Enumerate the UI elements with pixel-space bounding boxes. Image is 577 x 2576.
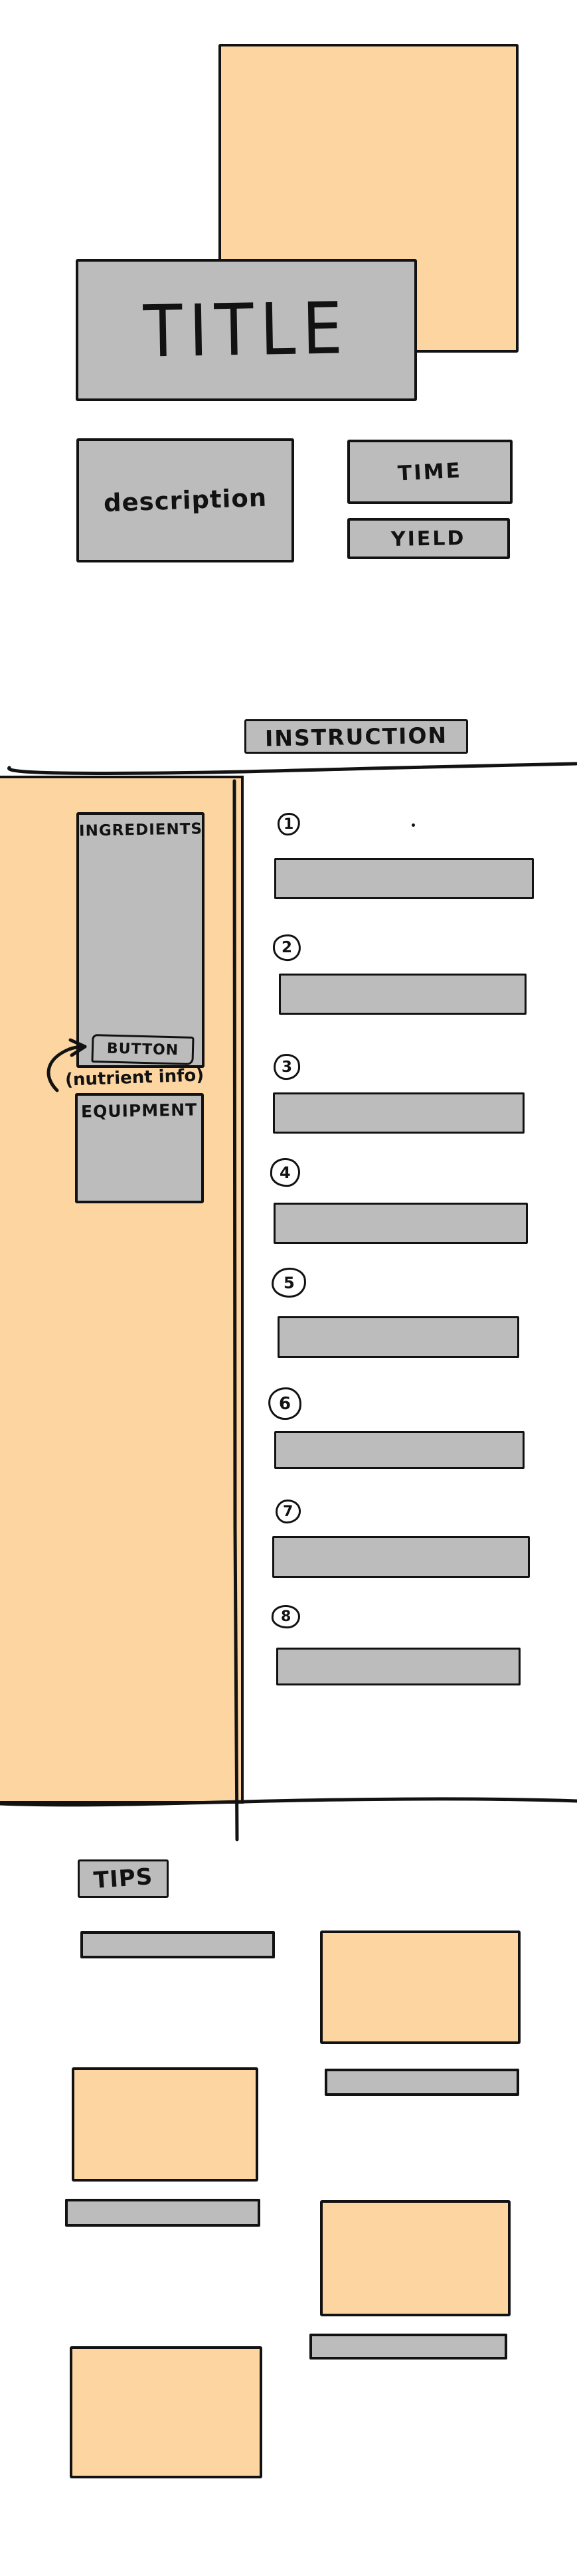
title-box: TITLE [76,259,417,401]
nutrient-info-annotation: (nutrient info) [63,1068,206,1088]
step-text-bar-8 [276,1648,521,1685]
description-box: description [76,438,294,562]
instruction-header: INSTRUCTION [244,719,468,754]
step-number-8: 8 [271,1604,301,1630]
nutrient-info-button[interactable]: BUTTON [91,1034,194,1065]
step-number-4: 4 [270,1158,301,1187]
step-text-bar-4 [274,1203,528,1244]
tips-image-placeholder-1 [320,1931,521,2044]
ingredients-box: INGREDIENTS [76,812,205,1068]
step-text-bar-5 [278,1316,519,1358]
nutrient-info-button-label: BUTTON [107,1041,179,1059]
step-number-1: 1 [276,812,301,836]
step-number-2: 2 [272,934,302,962]
tips-image-placeholder-2 [72,2067,258,2182]
ingredients-label: INGREDIENTS [78,820,202,839]
equipment-label: EQUIPMENT [81,1100,198,1121]
title-text: TITLE [143,287,350,374]
ink-dot [412,823,415,827]
yield-badge: YIELD [347,518,510,559]
step-number-5: 5 [270,1266,307,1299]
step-text-bar-7 [272,1536,530,1578]
time-badge: TIME [347,440,513,504]
tips-header: TIPS [78,1859,169,1898]
tips-text-bar-2 [325,2069,519,2096]
step-number-7: 7 [275,1499,301,1524]
step-text-bar-2 [279,974,527,1015]
tips-image-placeholder-4 [70,2346,262,2478]
step-number-6: 6 [267,1386,303,1421]
tips-image-placeholder-3 [320,2200,511,2316]
tips-header-text: TIPS [93,1863,154,1894]
step-number-3: 3 [272,1053,301,1080]
tips-text-bar-1 [80,1931,275,1958]
description-text: description [103,483,267,518]
yield-label: YIELD [391,527,466,551]
instruction-header-text: INSTRUCTION [265,722,448,751]
step-text-bar-1 [274,858,534,899]
equipment-box: EQUIPMENT [75,1093,204,1203]
tips-text-bar-4 [309,2334,507,2360]
step-text-bar-3 [273,1092,525,1134]
section-divider-line [9,764,576,773]
step-text-bar-6 [274,1431,525,1469]
time-label: TIME [397,458,462,485]
tips-text-bar-3 [65,2199,260,2227]
recipe-wireframe-page: TITLE description TIME YIELD INSTRUCTION… [0,0,577,2576]
